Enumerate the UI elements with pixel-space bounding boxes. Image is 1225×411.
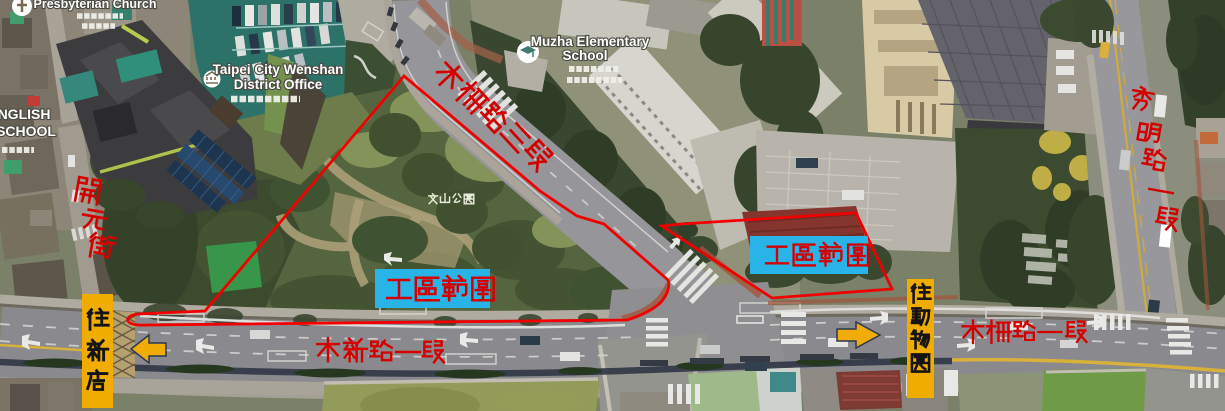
- svg-text:District Office: District Office: [234, 77, 323, 92]
- svg-text:Presbyterian Church: Presbyterian Church: [34, 0, 157, 11]
- svg-text:School: School: [562, 48, 607, 63]
- svg-text:NGLISH: NGLISH: [0, 106, 50, 122]
- svg-text:Muzha Elementary: Muzha Elementary: [531, 34, 650, 49]
- svg-text:SCHOOL: SCHOOL: [0, 123, 56, 139]
- svg-text:Taipei City Wenshan: Taipei City Wenshan: [213, 62, 344, 77]
